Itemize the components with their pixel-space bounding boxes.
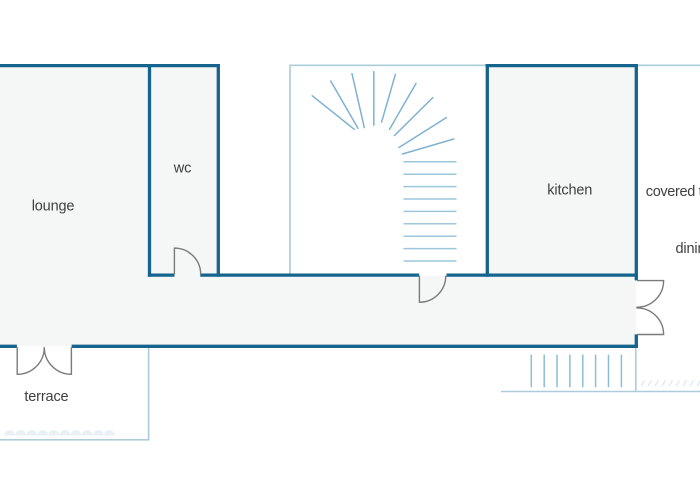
svg-text:terrace: terrace — [24, 389, 68, 405]
svg-text:dining: dining — [676, 241, 700, 257]
svg-text:wc: wc — [173, 161, 191, 177]
svg-text:kitchen: kitchen — [547, 183, 592, 199]
svg-text:covered terrace: covered terrace — [646, 184, 700, 200]
svg-text:lounge: lounge — [32, 199, 75, 215]
